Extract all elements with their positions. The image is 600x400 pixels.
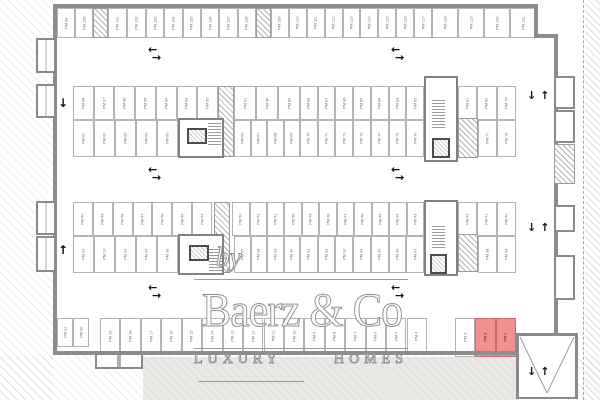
stall-label: PM 65	[166, 133, 170, 144]
parking-stall: PM 10	[284, 318, 304, 354]
stall-label: PM 16	[170, 330, 174, 341]
shaft-hatch	[458, 118, 478, 158]
parking-stall: PM 19	[100, 318, 120, 354]
parking-stall: PM 25	[136, 236, 157, 273]
parking-stall: PM 48	[319, 202, 337, 236]
arrow-down-icon: ↓	[527, 366, 536, 377]
stall-label: PM 66	[240, 133, 244, 144]
arrow-down-icon: ↓	[58, 97, 68, 109]
stall-label: PM 76	[413, 133, 417, 144]
stall-label: PM 42	[466, 213, 470, 224]
stall-label: PM 25	[145, 249, 149, 260]
shaft-hatch	[458, 234, 478, 272]
stall-label: PM 88	[307, 97, 311, 108]
parking-stall: PM 79	[497, 86, 516, 120]
stall-label: PM 104	[172, 16, 176, 29]
stall-label: PM 112	[332, 16, 336, 29]
parking-stall: PM 110	[289, 8, 307, 38]
parking-stall: PM 32	[318, 236, 336, 273]
stall-label: PM 96	[123, 97, 127, 108]
parking-stall: PM 119	[458, 8, 484, 38]
parking-stall: PM 73	[353, 120, 371, 157]
stall-label: PM 71	[325, 133, 329, 144]
watermark-rule-top	[194, 279, 408, 280]
stall-label: PM 18	[129, 330, 133, 341]
stall-label: PM 90	[265, 97, 269, 108]
parking-stall: PM 76	[406, 120, 424, 157]
stall-label: PM 12	[251, 330, 255, 341]
parking-stall: PM 13	[223, 318, 243, 354]
drive-direction-arrows-icon: ←→	[148, 166, 161, 182]
parking-stall: PM 40	[497, 202, 516, 236]
parking-stall: PM 17	[141, 318, 161, 354]
parking-stall: PM 96	[114, 86, 135, 120]
stall-label: PM 48	[326, 213, 330, 224]
stall-label: PM 35	[378, 249, 382, 260]
parking-stall: PM 31	[300, 236, 318, 273]
parking-stall: PM 23	[94, 236, 115, 273]
parking-stall: PM 68	[267, 120, 284, 157]
parking-stall: PM 111	[307, 8, 325, 38]
parking-stall: PM 61	[73, 120, 94, 157]
parking-stall: PM 56	[152, 202, 172, 236]
stall-label: PM 63	[124, 133, 128, 144]
parking-stall: PM 98	[73, 86, 94, 120]
stall-label: PM 52	[256, 213, 260, 224]
parking-stall: PM 36	[389, 236, 407, 273]
stall-label: PM 60	[81, 213, 85, 224]
property-boundary-line	[583, 0, 584, 400]
stall-label: PM 46	[361, 213, 365, 224]
parking-stall: PM 114	[360, 8, 378, 38]
parking-stall: PM 106	[201, 8, 219, 38]
stall-label: PM 14	[210, 330, 214, 341]
stall-label: PM 102	[135, 16, 139, 29]
stair-icon	[432, 226, 445, 250]
stall-label: PM 75	[396, 133, 400, 144]
parking-stall: PM 57	[133, 202, 153, 236]
stall-label: PM 54	[200, 213, 204, 224]
stall-label: PM 13	[231, 330, 235, 341]
stall-label: PM 3	[463, 333, 467, 342]
parking-stall: PM 108	[238, 8, 256, 38]
stall-label: PM 69	[290, 133, 294, 144]
stall-label: PM 67	[257, 133, 261, 144]
parking-stall: PM 55	[172, 202, 192, 236]
drive-direction-arrows-icon: ←→	[391, 166, 404, 182]
stall-label: PM 8	[333, 332, 337, 341]
parking-stall: PM 104	[164, 8, 182, 38]
stall-label: PM 7	[354, 332, 358, 341]
elevator-icon	[189, 245, 209, 261]
parking-stall: PM 54	[192, 202, 212, 236]
parking-stall: PM 83	[389, 86, 407, 120]
stall-label: PM 30	[290, 249, 294, 260]
parking-stall: PM 15	[182, 318, 202, 354]
parking-stall: PM 116	[396, 8, 414, 38]
stall-label: PM 28	[257, 249, 261, 260]
stall-label: PM 4	[415, 332, 419, 341]
stair-icon	[432, 100, 445, 130]
stall-label: PM 5	[394, 332, 398, 341]
stall-label: PM 100	[82, 16, 86, 29]
arrow-right-icon: →	[152, 292, 161, 300]
parking-stall: PM 84	[371, 86, 389, 120]
parking-stall: PM 89	[278, 86, 300, 120]
parking-stall: PM 103	[146, 8, 164, 38]
site-hatch-right	[585, 0, 600, 400]
stall-label: PM 51	[274, 213, 278, 224]
parking-stall: PM 46	[354, 202, 372, 236]
stall-label: PM 121	[521, 16, 525, 29]
stall-label: PM 74	[378, 133, 382, 144]
stall-label: PM 89	[287, 97, 291, 108]
stall-label: PM 41	[485, 213, 489, 224]
stall-label: PM 49	[309, 213, 313, 224]
parking-stall: PM 28	[251, 236, 268, 273]
elevator-icon	[187, 128, 207, 144]
stall-label: PM 109	[278, 16, 282, 29]
parking-stall: PM 88	[300, 86, 318, 120]
parking-stall: PM 44	[389, 202, 407, 236]
stall-label: PM 9	[313, 332, 317, 341]
stair-core-right-lower	[424, 200, 458, 276]
stall-label: PM 111	[314, 17, 318, 30]
parking-stall: PM 9	[304, 318, 324, 354]
stall-label: PM 27	[240, 249, 244, 260]
parking-stall: PM 12	[243, 318, 263, 354]
parking-stall: PM 101	[108, 8, 127, 38]
parking-stall: PM 18	[120, 318, 140, 354]
stall-label: PM 95	[144, 97, 148, 108]
parking-stall: PM 30	[284, 236, 301, 273]
parking-stall: PM 74	[371, 120, 389, 157]
parking-stall: PM 117	[414, 8, 432, 38]
stall-label: PM 68	[273, 133, 277, 144]
stair-core-center-lower	[178, 234, 224, 275]
parking-stall: PM 92	[197, 86, 218, 120]
stall-label: PM 22	[82, 249, 86, 260]
elevator-icon	[432, 138, 450, 158]
stall-label: PM 45	[378, 213, 382, 224]
parking-stall: PM 42	[458, 202, 477, 236]
stall-label: PM 118	[443, 16, 447, 29]
stall-label: PM 114	[367, 16, 371, 29]
parking-stall: PM 72	[335, 120, 353, 157]
stall-label: PM 79	[504, 97, 508, 108]
stall-label: PM 29	[273, 249, 277, 260]
parking-stall: PM 4	[407, 318, 427, 354]
parking-stall: PM 112	[325, 8, 343, 38]
stall-label: PM 20	[79, 327, 83, 338]
parking-stall: PM 50	[284, 202, 302, 236]
stall-label: PM 57	[141, 213, 145, 224]
parking-stall: PM 62	[94, 120, 115, 157]
stall-label: PM 110	[296, 16, 300, 29]
parking-stall: PM 105	[183, 8, 201, 38]
stair-icon	[209, 249, 222, 273]
stall-label: PM 106	[208, 16, 212, 29]
stall-label: PM 85	[360, 97, 364, 108]
parking-stall: PM 67	[251, 120, 268, 157]
parking-stall: PM 78	[497, 120, 516, 157]
stall-label: PM 78	[505, 133, 509, 144]
wall-top-right-step-v	[534, 4, 538, 38]
drive-direction-arrows-icon: ←→	[148, 284, 161, 300]
stall-label: PM 44	[396, 213, 400, 224]
stair-icon	[208, 123, 221, 147]
parking-stall: PM 45	[372, 202, 390, 236]
arrow-down-icon: ↓	[527, 90, 536, 101]
left-niche	[36, 236, 56, 272]
parking-stall: PM 77	[478, 120, 497, 157]
parking-stall: PM 16	[161, 318, 181, 354]
site-ground	[143, 357, 518, 400]
stall-label: PM 98	[81, 97, 85, 108]
parking-stall: PM 39	[497, 236, 516, 273]
arrow-down-icon: ↓	[527, 222, 536, 233]
parking-stall: PM 109	[271, 8, 289, 38]
left-niche	[36, 38, 56, 73]
left-niche	[36, 84, 56, 118]
stall-label: PM 120	[495, 16, 499, 29]
stall-label: PM 1	[504, 333, 508, 342]
right-room	[554, 255, 575, 300]
stall-label: PM 40	[504, 213, 508, 224]
parking-stall: PM 70	[300, 120, 318, 157]
stall-label: PM 15	[190, 330, 194, 341]
drive-direction-arrows-icon: ↓↑	[527, 366, 549, 377]
arrow-up-icon: ↑	[540, 222, 549, 233]
arrow-up-icon: ↑	[58, 244, 68, 256]
arrow-right-icon: →	[395, 174, 404, 182]
parking-stall: PM 41	[477, 202, 496, 236]
parking-stall: PM 69	[284, 120, 301, 157]
parking-stall: PM 102	[127, 8, 146, 38]
stall-label: PM 59	[101, 213, 105, 224]
parking-stall: PM 29	[267, 236, 284, 273]
stall-label: PM 83	[396, 97, 400, 108]
parking-stall: PM 85	[353, 86, 371, 120]
parking-stall: PM 38	[478, 236, 497, 273]
stall-label: PM 119	[469, 16, 473, 29]
right-stair-room	[554, 144, 575, 184]
parking-stall: PM 33	[335, 236, 353, 273]
stall-label: PM 117	[421, 16, 425, 29]
stair-core-right-upper	[424, 76, 458, 162]
stall-label: PM 32	[325, 249, 329, 260]
shear-wall-hatch	[256, 8, 271, 38]
drive-direction-arrows-icon: ↓↑	[527, 222, 549, 233]
parking-stall: PM 64	[136, 120, 157, 157]
stall-label: PM 21	[63, 327, 67, 338]
parking-stall: PM 95	[135, 86, 156, 120]
stall-label: PM 105	[190, 16, 194, 29]
parking-stall: PM 66	[234, 120, 251, 157]
parking-stall: PM 59	[93, 202, 113, 236]
parking-stall: PM 87	[318, 86, 336, 120]
parking-stall: PM 82	[406, 86, 424, 120]
parking-stall: PM 37	[406, 236, 424, 273]
parking-floor-plan: by Baerz & Co LUXURY HOMES PM 99PM 100PM…	[0, 0, 600, 400]
right-room	[554, 205, 575, 232]
left-niche	[36, 201, 56, 235]
stall-label: PM 116	[403, 16, 407, 29]
parking-stall: PM 20	[73, 318, 89, 347]
arrow-right-icon: →	[395, 292, 404, 300]
parking-stall: PM 24	[115, 236, 136, 273]
parking-stall: PM 49	[302, 202, 320, 236]
stall-label: PM 103	[153, 16, 157, 29]
stall-label: PM 11	[272, 331, 276, 342]
parking-stall: PM 107	[219, 8, 237, 38]
wall-top	[53, 4, 538, 8]
parking-stall: PM 90	[256, 86, 278, 120]
stall-label: PM 43	[413, 213, 417, 224]
stall-label: PM 26	[166, 249, 170, 260]
stall-label: PM 80	[485, 97, 489, 108]
parking-stall: PM 8	[325, 318, 345, 354]
stall-label: PM 38	[486, 249, 490, 260]
stall-label: PM 64	[145, 133, 149, 144]
stall-label: PM 37	[413, 249, 417, 260]
stall-label: PM 2	[483, 333, 487, 342]
stall-label: PM 87	[325, 97, 329, 108]
stall-label: PM 99	[64, 17, 68, 28]
parking-stall: PM 120	[484, 8, 510, 38]
parking-stall: PM 113	[343, 8, 361, 38]
stall-label: PM 36	[396, 249, 400, 260]
parking-stall: PM 26	[157, 236, 178, 273]
parking-stall: PM 27	[234, 236, 251, 273]
parking-stall: PM 35	[371, 236, 389, 273]
stall-label: PM 81	[466, 97, 470, 108]
stall-label: PM 55	[180, 213, 184, 224]
parking-stall: PM 94	[156, 86, 177, 120]
right-room	[554, 76, 575, 109]
parking-stall: PM 91	[234, 86, 256, 120]
arrow-right-icon: →	[152, 54, 161, 62]
stall-label: PM 113	[350, 16, 354, 29]
stall-label: PM 84	[378, 97, 382, 108]
parking-stall: PM 63	[115, 120, 136, 157]
stall-label: PM 10	[292, 330, 296, 341]
bottom-protrusion	[95, 353, 143, 369]
elevator-icon	[430, 254, 447, 274]
stall-label: PM 56	[160, 213, 164, 224]
stall-label: PM 24	[124, 249, 128, 260]
parking-stall: PM 60	[73, 202, 93, 236]
stall-label: PM 107	[227, 16, 231, 29]
stall-label: PM 97	[102, 97, 106, 108]
parking-stall: PM 121	[510, 8, 536, 38]
parking-stall: PM 97	[94, 86, 115, 120]
arrow-up-icon: ↑	[540, 90, 549, 101]
parking-stall: PM 99	[57, 8, 75, 38]
stall-label: PM 23	[103, 249, 107, 260]
parking-stall: PM 58	[113, 202, 133, 236]
stall-label: PM 33	[342, 249, 346, 260]
parking-stall: PM 100	[75, 8, 93, 38]
stall-label: PM 50	[291, 213, 295, 224]
stall-label: PM 58	[121, 213, 125, 224]
parking-stall: PM 51	[267, 202, 285, 236]
arrow-right-icon: →	[152, 174, 161, 182]
stall-label: PM 19	[108, 330, 112, 341]
right-room	[554, 110, 575, 143]
stall-label: PM 70	[307, 133, 311, 144]
parking-stall: PM 115	[378, 8, 396, 38]
parking-stall: PM 53	[232, 202, 250, 236]
parking-stall: PM 71	[318, 120, 336, 157]
stair-core-center-upper	[178, 118, 224, 158]
arrow-up-icon: ↑	[540, 366, 549, 377]
parking-stall: PM 65	[157, 120, 178, 157]
parking-stall: PM 81	[458, 86, 477, 120]
stall-label: PM 91	[243, 97, 247, 108]
parking-stall: PM 93	[177, 86, 198, 120]
parking-stall: PM 6	[366, 318, 386, 354]
parking-stall: PM 34	[353, 236, 371, 273]
parking-stall: PM 43	[407, 202, 425, 236]
parking-stall: PM 22	[73, 236, 94, 273]
parking-stall: PM 52	[250, 202, 268, 236]
stall-label: PM 108	[245, 16, 249, 29]
parking-stall: PM 7	[345, 318, 365, 354]
drive-direction-arrows-icon: ←→	[148, 46, 161, 62]
stall-label: PM 115	[385, 16, 389, 29]
stall-label: PM 93	[185, 97, 189, 108]
stall-label: PM 77	[486, 133, 490, 144]
parking-stall: PM 80	[477, 86, 496, 120]
parking-stall: PM 75	[389, 120, 407, 157]
arrow-right-icon: →	[395, 54, 404, 62]
drive-direction-arrows-icon: ↓↑	[527, 90, 549, 101]
stall-label: PM 92	[206, 97, 210, 108]
parking-stall: PM 21	[57, 318, 73, 347]
stall-label: PM 61	[82, 133, 86, 144]
stall-label: PM 53	[239, 213, 243, 224]
parking-stall: PM 11	[264, 318, 284, 354]
stall-label: PM 31	[307, 249, 311, 260]
parking-stall: PM 5	[386, 318, 406, 354]
stall-label: PM 39	[505, 249, 509, 260]
stall-label: PM 73	[360, 133, 364, 144]
shear-wall-hatch	[93, 8, 108, 38]
stall-label: PM 34	[360, 249, 364, 260]
drive-direction-arrows-icon: ←→	[391, 46, 404, 62]
stall-label: PM 62	[103, 133, 107, 144]
stall-label: PM 82	[413, 97, 417, 108]
stall-label: PM 6	[374, 332, 378, 341]
stall-label: PM 72	[342, 133, 346, 144]
stall-label: PM 86	[342, 97, 346, 108]
stall-label: PM 94	[164, 97, 168, 108]
stall-label: PM 47	[344, 213, 348, 224]
parking-stall: PM 14	[202, 318, 222, 354]
parking-stall: PM 118	[432, 8, 458, 38]
parking-stall: PM 86	[335, 86, 353, 120]
parking-stall: PM 47	[337, 202, 355, 236]
stall-label: PM 101	[116, 16, 120, 29]
drive-direction-arrows-icon: ←→	[391, 284, 404, 300]
stall-label: PM 17	[149, 330, 153, 341]
